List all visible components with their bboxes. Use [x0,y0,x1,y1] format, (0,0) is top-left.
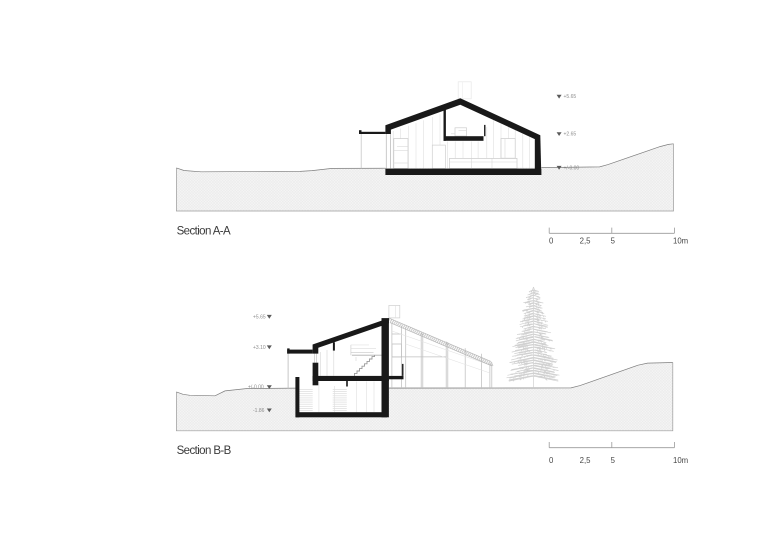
svg-text:0: 0 [549,456,554,465]
svg-text:10m: 10m [673,237,688,246]
svg-text:+/-0.00: +/-0.00 [564,165,580,171]
svg-text:+5.65: +5.65 [253,314,266,320]
svg-text:5: 5 [611,237,616,246]
svg-text:-1.86: -1.86 [253,408,265,414]
svg-text:+3.10: +3.10 [253,345,266,351]
svg-text:2,5: 2,5 [580,237,592,246]
svg-text:Section A-A: Section A-A [177,225,231,237]
svg-text:0: 0 [549,237,554,246]
svg-text:+2.65: +2.65 [564,132,577,138]
svg-text:10m: 10m [673,456,688,465]
svg-text:5: 5 [611,456,616,465]
svg-text:+5.65: +5.65 [564,94,577,100]
svg-text:Section B-B: Section B-B [177,445,232,457]
svg-text:+/-0.00: +/-0.00 [248,385,264,391]
svg-text:2,5: 2,5 [580,456,592,465]
